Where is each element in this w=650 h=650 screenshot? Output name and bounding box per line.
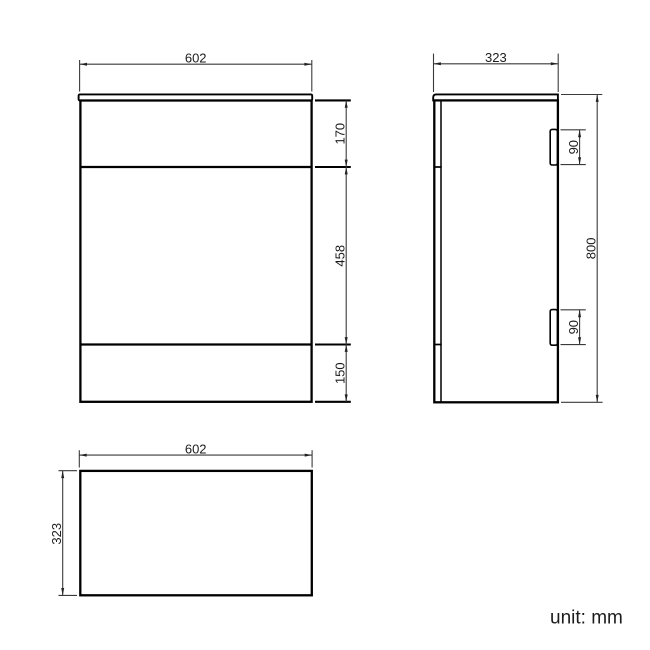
- svg-text:90: 90: [566, 140, 581, 154]
- svg-text:90: 90: [566, 320, 581, 334]
- svg-text:unit: mm: unit: mm: [550, 608, 623, 629]
- svg-text:150: 150: [332, 362, 347, 384]
- svg-text:602: 602: [185, 442, 207, 457]
- svg-text:800: 800: [583, 238, 598, 260]
- svg-text:602: 602: [185, 51, 207, 66]
- svg-text:323: 323: [49, 523, 64, 545]
- svg-text:323: 323: [485, 50, 507, 65]
- svg-text:170: 170: [332, 123, 347, 145]
- svg-text:458: 458: [332, 245, 347, 267]
